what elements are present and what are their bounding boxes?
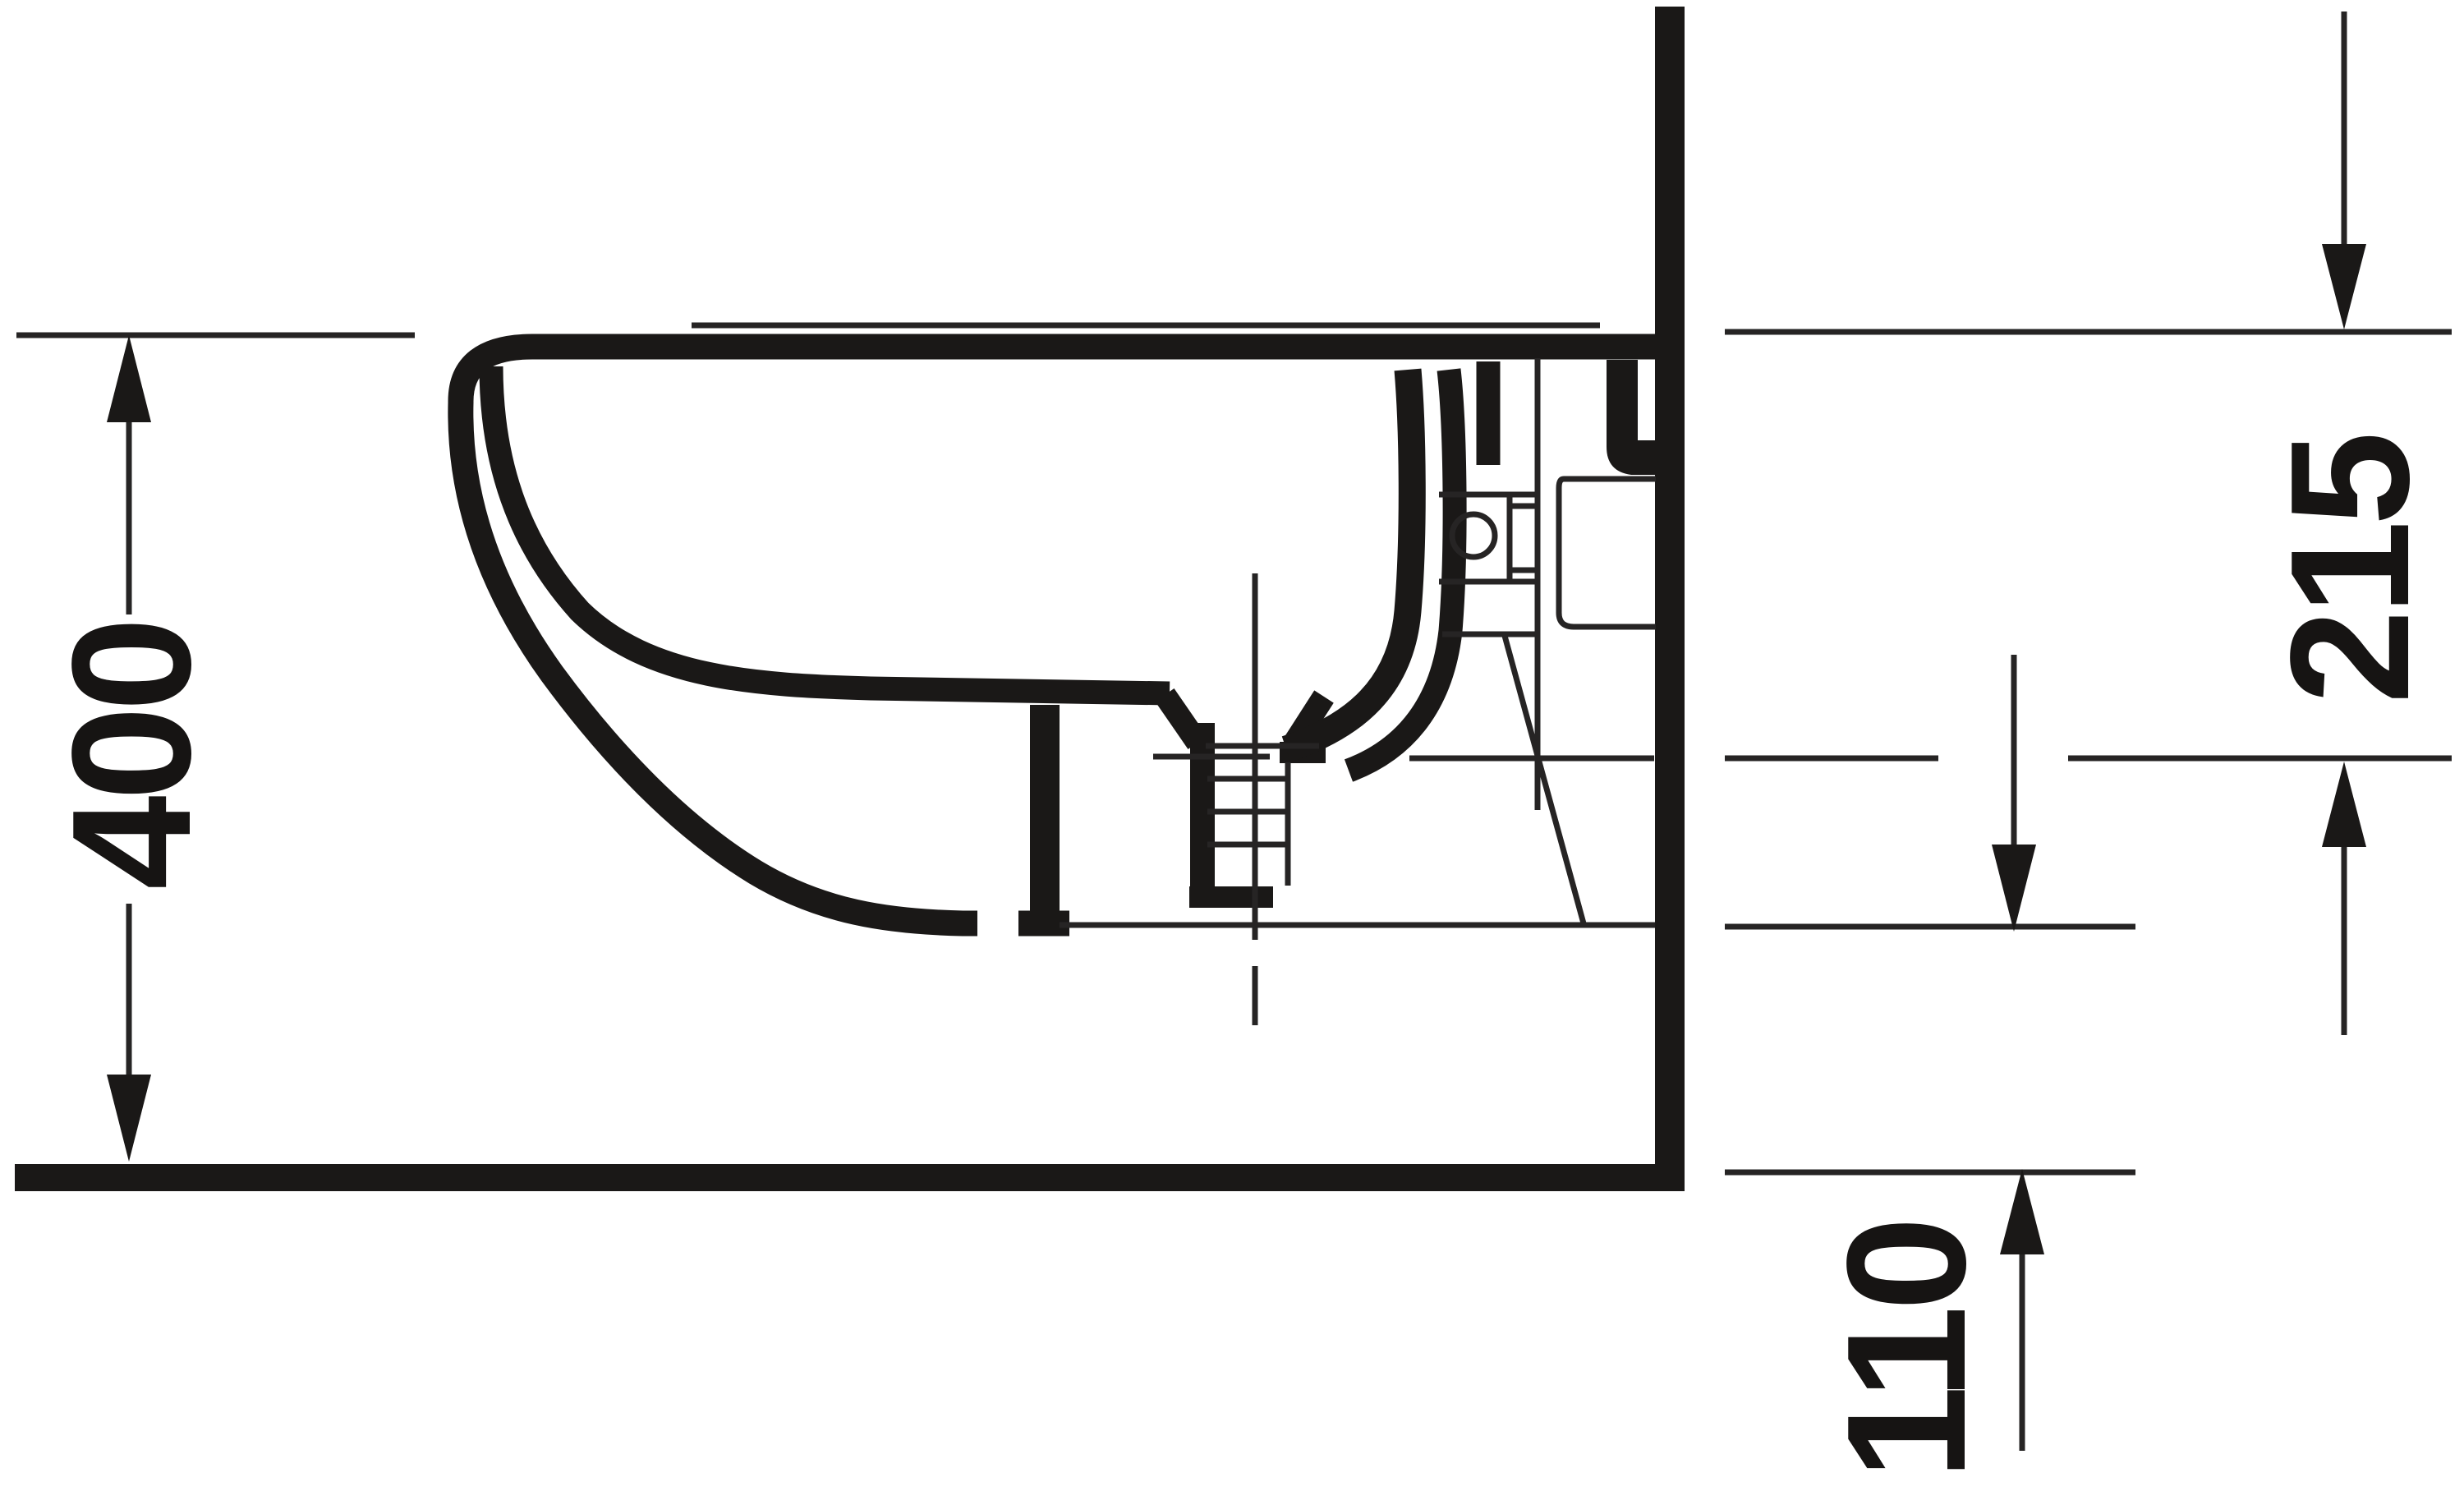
- dimension-400: 400: [37, 335, 226, 1162]
- arrow-up-icon: [2322, 762, 2366, 847]
- wall-section-line: [1655, 7, 1685, 1191]
- rear-ceramic-block: [1559, 479, 1656, 627]
- bowl-inner-contour: [491, 366, 1170, 693]
- arrow-up-icon: [2000, 1169, 2044, 1254]
- floor-section-line: [15, 1164, 1685, 1191]
- dimension-label-215: 215: [2255, 436, 2444, 704]
- technical-drawing-page: 400 215 110: [0, 0, 2464, 1505]
- rear-slope-line: [1505, 636, 1584, 923]
- bottom-notch: [979, 907, 1017, 941]
- rear-wall-inner-curve: [1286, 370, 1412, 749]
- dimension-110: 110: [1812, 655, 2044, 1480]
- extension-lines: [16, 332, 2452, 1172]
- dimension-label-400: 400: [37, 622, 226, 890]
- bidet-fixture-outline: [461, 325, 1656, 941]
- arrow-down-icon: [107, 1075, 151, 1162]
- bidet-side-elevation-drawing: 400 215 110: [0, 0, 2464, 1505]
- arrow-down-icon: [1992, 845, 2036, 932]
- wall-and-floor: [15, 7, 1685, 1191]
- dimension-label-110: 110: [1812, 1222, 2001, 1480]
- dimension-215: 215: [2255, 12, 2444, 1035]
- rear-mounting-hook: [1607, 360, 1656, 475]
- arrow-up-icon: [107, 335, 151, 422]
- arrow-down-icon: [2322, 244, 2366, 329]
